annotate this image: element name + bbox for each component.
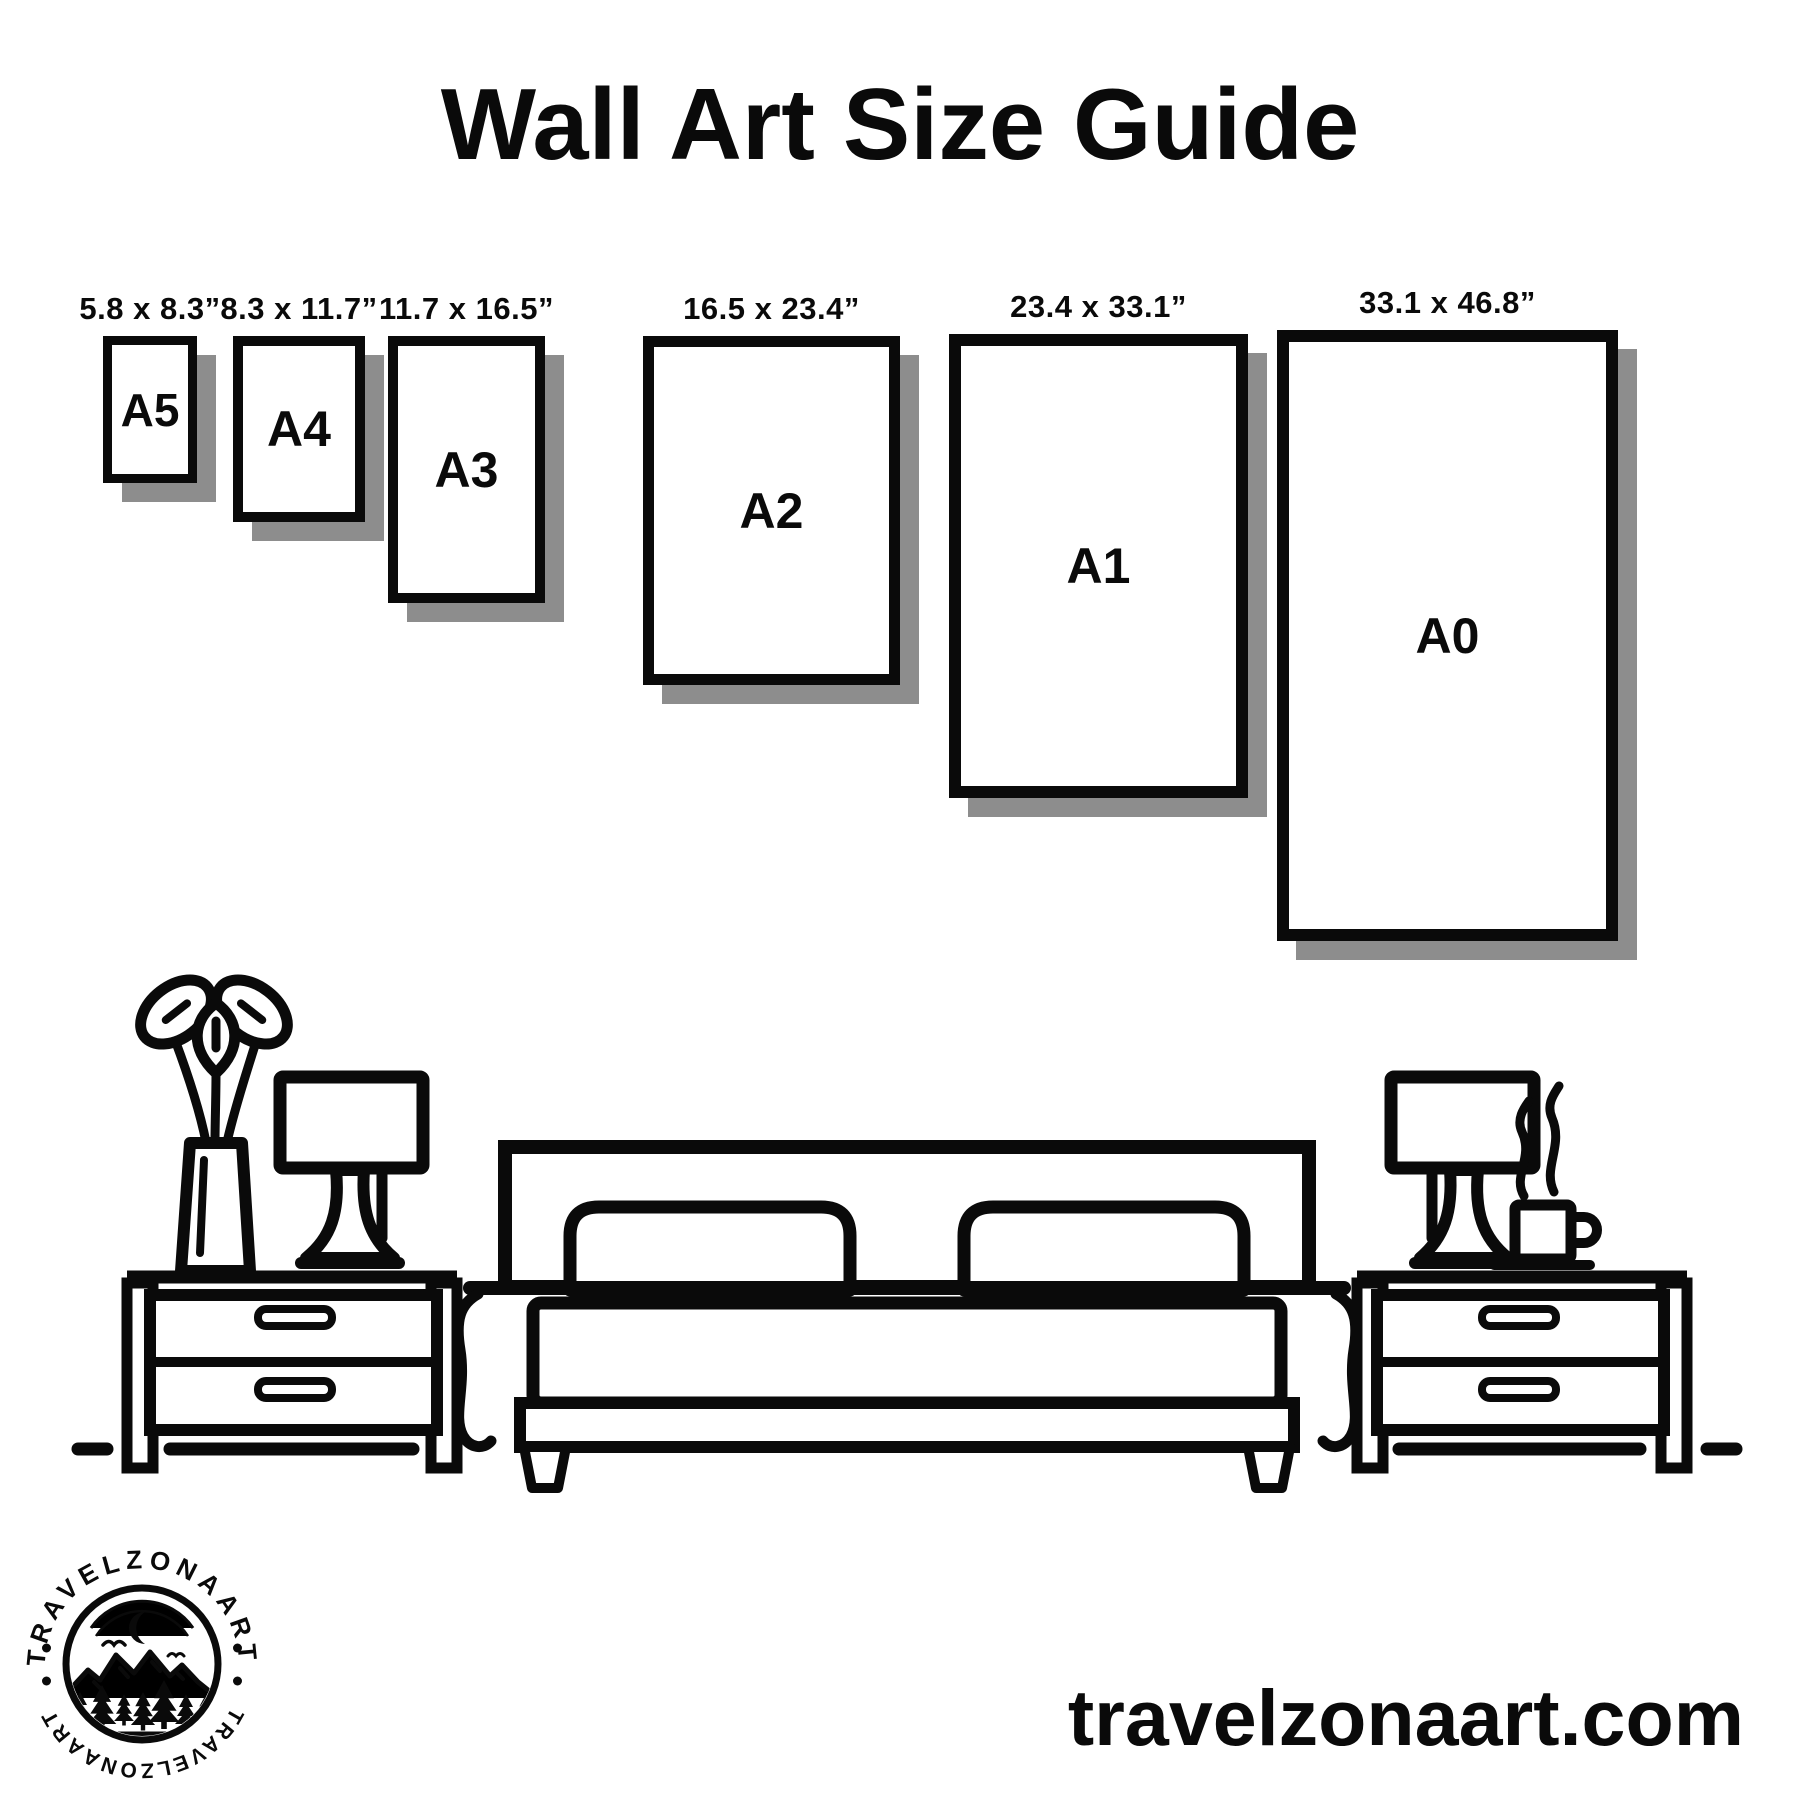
bird-icon — [168, 1654, 184, 1657]
wall-art-size-guide-poster: Wall Art Size Guide 5.8 x 8.3” A5 8.3 x … — [0, 0, 1800, 1800]
website-url: travelzonaart.com — [1068, 1672, 1744, 1764]
brand-logo: TRAVELZONAART TRAVELZONAART — [0, 0, 1800, 1800]
